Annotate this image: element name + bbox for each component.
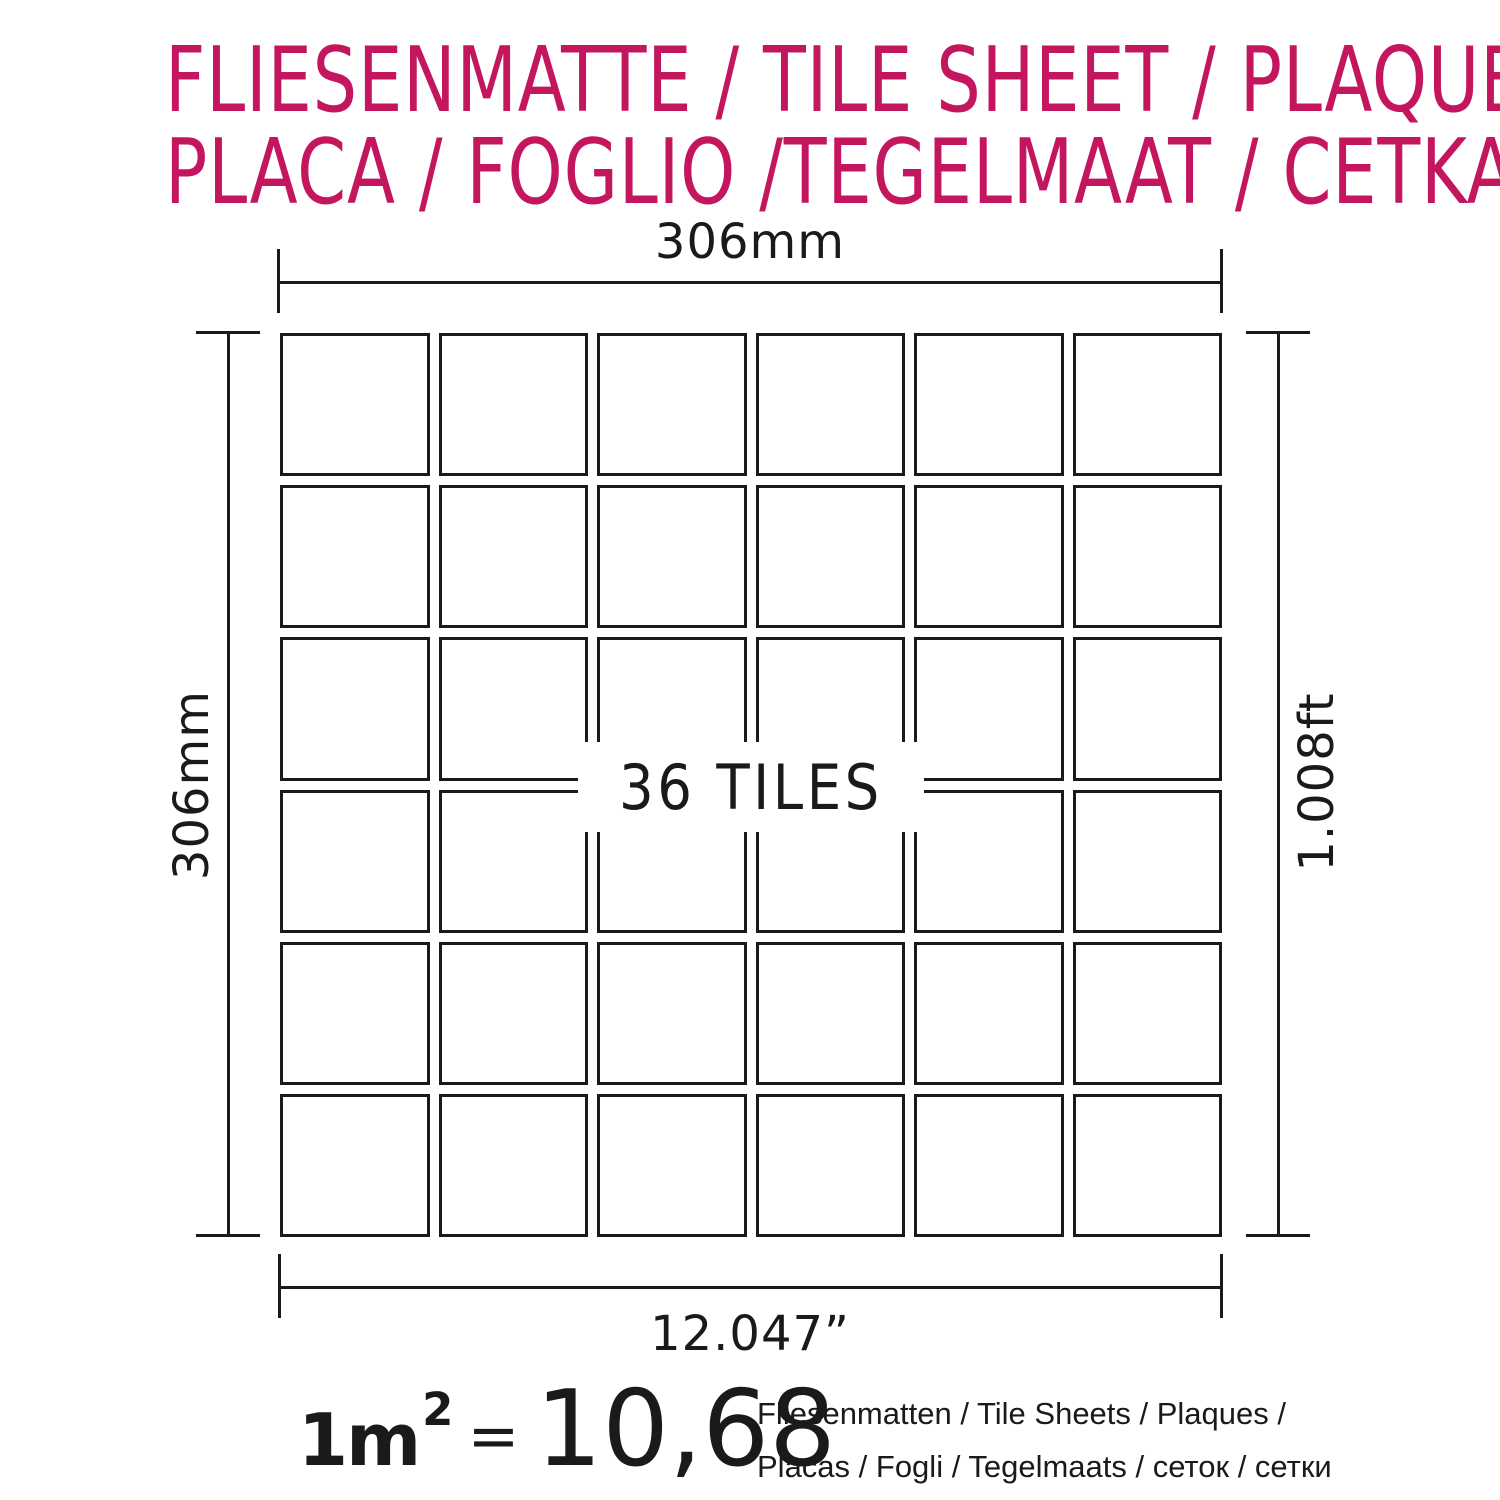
top-dimension-label: 306mm bbox=[550, 214, 950, 270]
tile bbox=[756, 485, 906, 628]
tile bbox=[756, 333, 906, 476]
top-dimension-line bbox=[278, 281, 1222, 284]
tile bbox=[439, 1094, 589, 1237]
bottom-dimension-right-tick bbox=[1220, 1254, 1223, 1318]
top-dimension-left-tick bbox=[277, 249, 280, 313]
left-dimension-line bbox=[227, 333, 230, 1237]
formula-units-line-1: Fliesenmatten / Tile Sheets / Plaques / bbox=[757, 1387, 1332, 1440]
tile bbox=[914, 1094, 1064, 1237]
tile bbox=[756, 1094, 906, 1237]
tiles-count-text: 36 TILES bbox=[619, 751, 883, 824]
tile bbox=[280, 942, 430, 1085]
tile bbox=[439, 485, 589, 628]
tile bbox=[1073, 790, 1223, 933]
tile bbox=[597, 942, 747, 1085]
tile bbox=[439, 942, 589, 1085]
tile bbox=[280, 485, 430, 628]
tile bbox=[597, 485, 747, 628]
formula-equals-sign: = bbox=[467, 1399, 519, 1472]
tile bbox=[439, 790, 589, 933]
tile bbox=[1073, 942, 1223, 1085]
formula-lhs: 1m bbox=[298, 1398, 419, 1482]
tile bbox=[914, 942, 1064, 1085]
left-dimension-top-tick bbox=[196, 331, 260, 334]
title-line-1: FLIESENMATTE / TILE SHEET / PLAQUE bbox=[165, 36, 1335, 126]
tile bbox=[914, 333, 1064, 476]
tile bbox=[914, 485, 1064, 628]
formula-exponent: 2 bbox=[422, 1383, 453, 1436]
tile bbox=[756, 942, 906, 1085]
tile bbox=[1073, 485, 1223, 628]
bottom-dimension-label: 12.047” bbox=[550, 1306, 950, 1362]
tile bbox=[280, 637, 430, 780]
tile bbox=[1073, 333, 1223, 476]
bottom-dimension-left-tick bbox=[278, 1254, 281, 1318]
tile bbox=[1073, 637, 1223, 780]
tile bbox=[914, 637, 1064, 780]
left-dimension-bottom-tick bbox=[196, 1234, 260, 1237]
tile bbox=[597, 1094, 747, 1237]
formula-units: Fliesenmatten / Tile Sheets / Plaques / … bbox=[757, 1387, 1332, 1494]
tile bbox=[439, 333, 589, 476]
right-dimension-top-tick bbox=[1246, 331, 1310, 334]
formula-units-line-2: Placas / Fogli / Tegelmaats / сеток / се… bbox=[757, 1440, 1332, 1493]
title-line-2: PLACA / FOGLIO /TEGELMAAT / CETKA bbox=[165, 128, 1335, 218]
bottom-dimension-line bbox=[280, 1286, 1222, 1289]
tile bbox=[439, 637, 589, 780]
tile bbox=[1073, 1094, 1223, 1237]
right-dimension-bottom-tick bbox=[1246, 1234, 1310, 1237]
tile bbox=[280, 790, 430, 933]
tile bbox=[280, 333, 430, 476]
left-dimension-label: 306mm bbox=[166, 665, 218, 905]
tile bbox=[914, 790, 1064, 933]
tiles-count-label: 36 TILES bbox=[578, 742, 924, 832]
top-dimension-right-tick bbox=[1220, 249, 1223, 313]
coverage-formula: 1m 2 = 10,68 bbox=[298, 1368, 836, 1483]
tile bbox=[597, 333, 747, 476]
right-dimension-label: 1.008ft bbox=[1291, 662, 1343, 902]
tile bbox=[280, 1094, 430, 1237]
right-dimension-line bbox=[1277, 333, 1280, 1237]
